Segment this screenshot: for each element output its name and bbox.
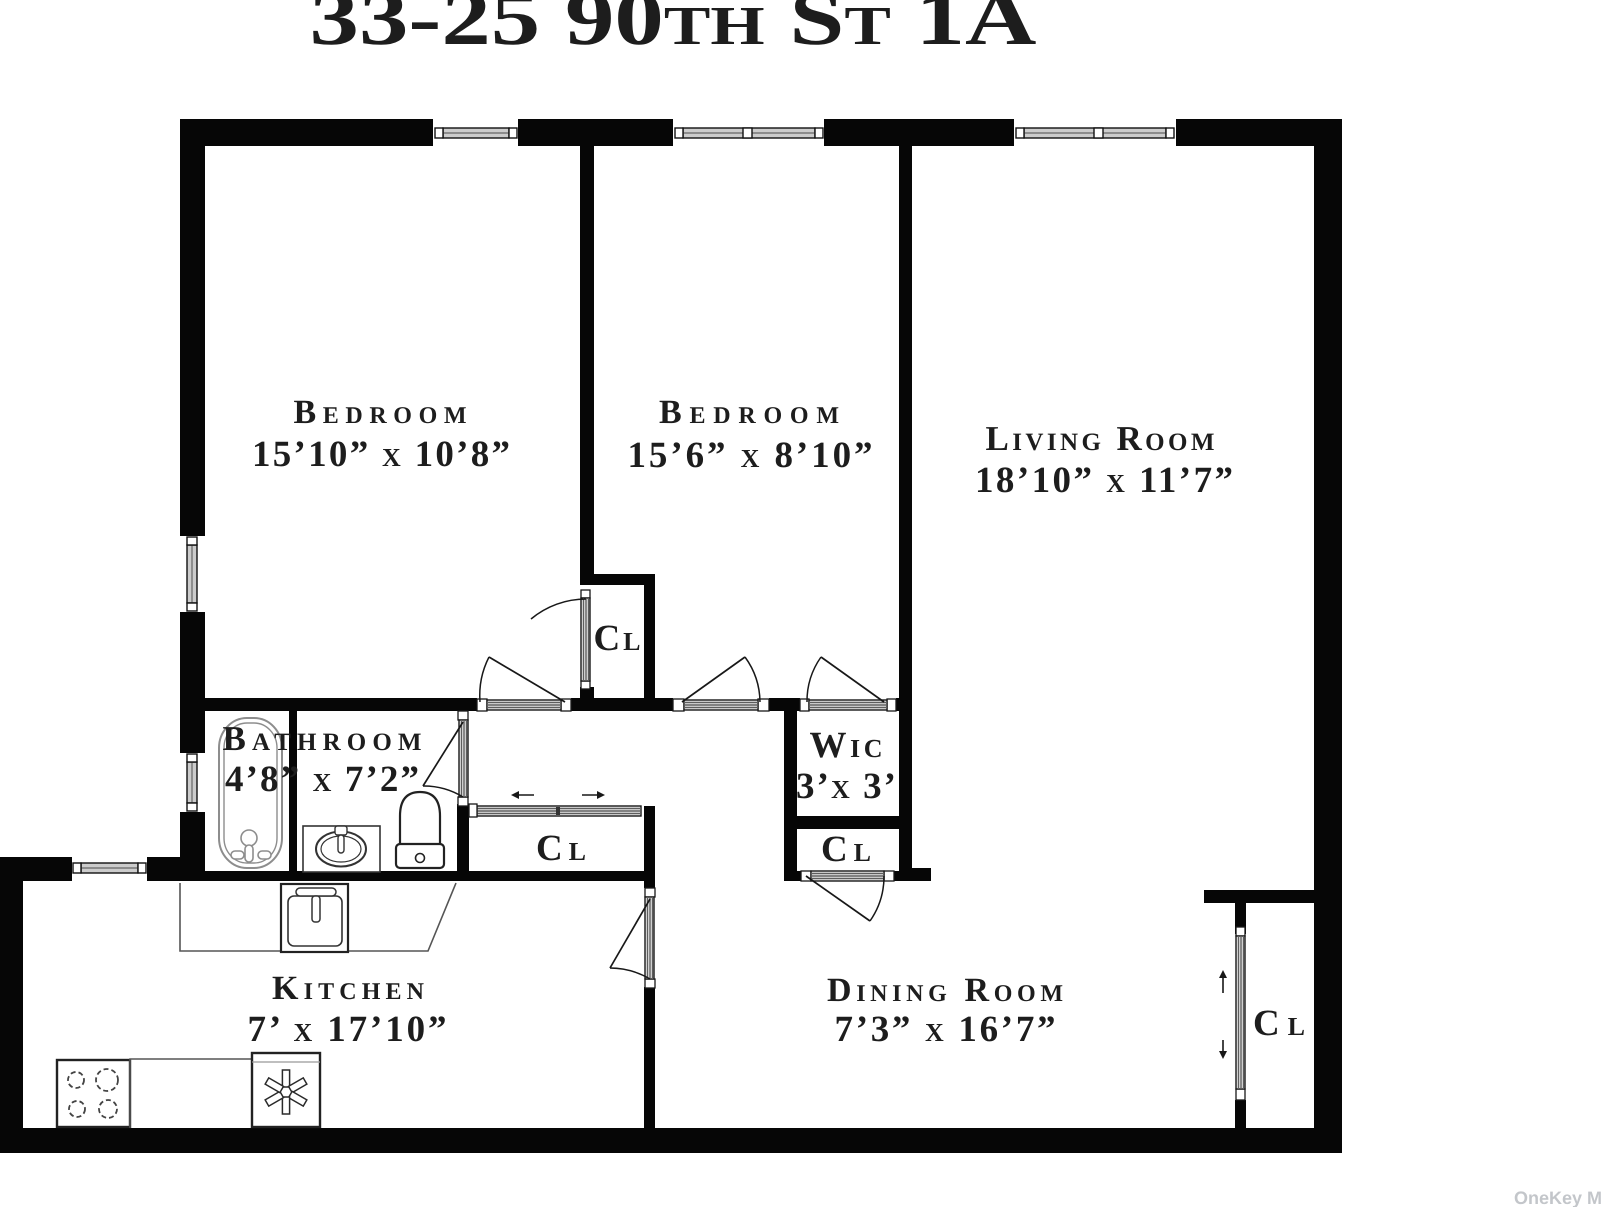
svg-text:3’x 3’: 3’x 3’ bbox=[796, 766, 896, 807]
svg-text:Cl: Cl bbox=[536, 828, 586, 869]
svg-text:4’8” x 7’2”: 4’8” x 7’2” bbox=[225, 759, 419, 800]
svg-text:Bathroom: Bathroom bbox=[223, 719, 422, 758]
svg-text:15’10” x 10’8”: 15’10” x 10’8” bbox=[252, 434, 510, 475]
svg-text:Wic: Wic bbox=[810, 725, 883, 766]
svg-text:Cl: Cl bbox=[1253, 1003, 1305, 1044]
svg-text:Cl: Cl bbox=[821, 829, 871, 870]
svg-text:OneKey MLS: OneKey MLS bbox=[1514, 1188, 1602, 1207]
svg-text:33-25 90th St 1A: 33-25 90th St 1A bbox=[310, 0, 1037, 61]
svg-text:Living Room: Living Room bbox=[986, 419, 1215, 458]
svg-text:Cl: Cl bbox=[594, 618, 641, 659]
svg-text:15’6” x 8’10”: 15’6” x 8’10” bbox=[628, 435, 873, 476]
svg-text:Dining Room: Dining Room bbox=[827, 972, 1063, 1009]
